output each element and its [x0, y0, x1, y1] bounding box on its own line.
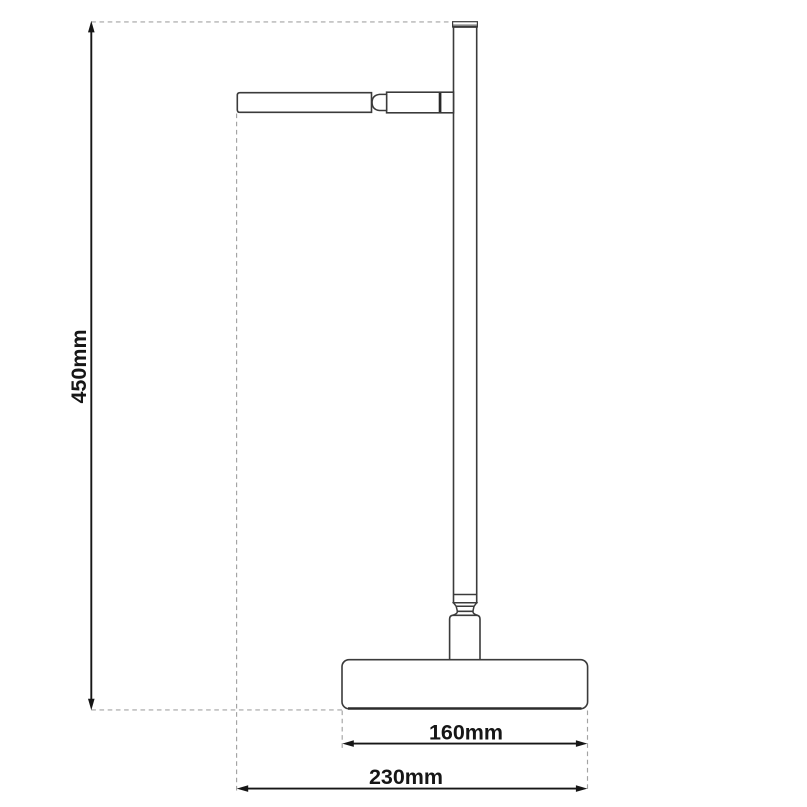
- svg-text:230mm: 230mm: [369, 765, 443, 789]
- svg-text:160mm: 160mm: [429, 720, 503, 744]
- svg-text:450mm: 450mm: [67, 329, 91, 403]
